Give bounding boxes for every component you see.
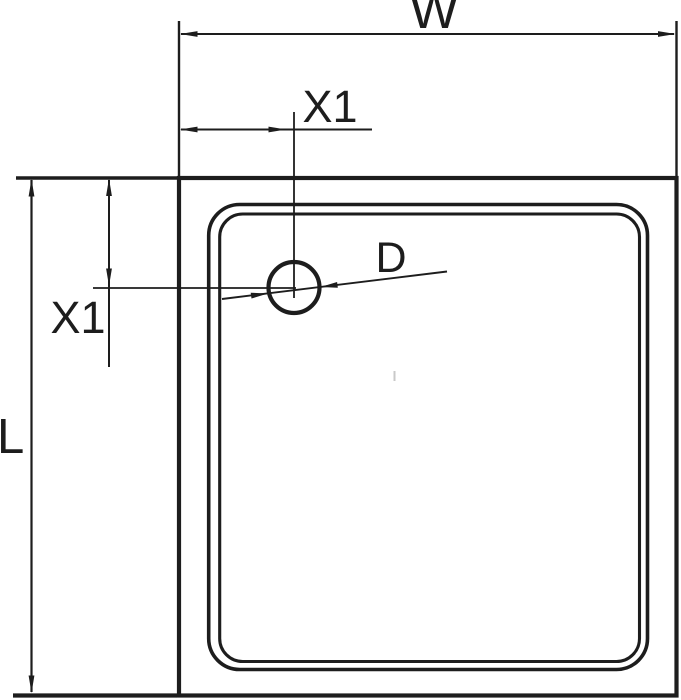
arrowhead-diameter-left xyxy=(251,293,268,299)
arrowhead-length-top xyxy=(29,179,35,197)
arrowhead-width-right xyxy=(658,31,676,37)
length-label: L xyxy=(0,410,24,464)
tray-rim-inner-wall xyxy=(220,214,640,662)
arrowhead-offset-horizontal-left xyxy=(180,127,198,133)
drain-offset-horizontal-label: X1 xyxy=(302,81,357,132)
arrowhead-offset-vertical-bottom xyxy=(106,269,112,287)
technical-drawing: W L X1 X1 D xyxy=(0,0,681,700)
tray-outer-square xyxy=(179,178,677,696)
drawing-canvas: W L X1 X1 D xyxy=(0,0,681,700)
width-label: W xyxy=(409,0,458,40)
arrowhead-length-bottom xyxy=(29,676,35,694)
arrowhead-offset-horizontal-right xyxy=(269,127,287,133)
arrowhead-diameter-right xyxy=(321,282,338,288)
arrowhead-width-left xyxy=(180,31,198,37)
arrowhead-offset-vertical-top xyxy=(106,179,112,197)
drain-offset-vertical-label: X1 xyxy=(50,292,105,343)
drain-diameter-label: D xyxy=(375,234,406,282)
